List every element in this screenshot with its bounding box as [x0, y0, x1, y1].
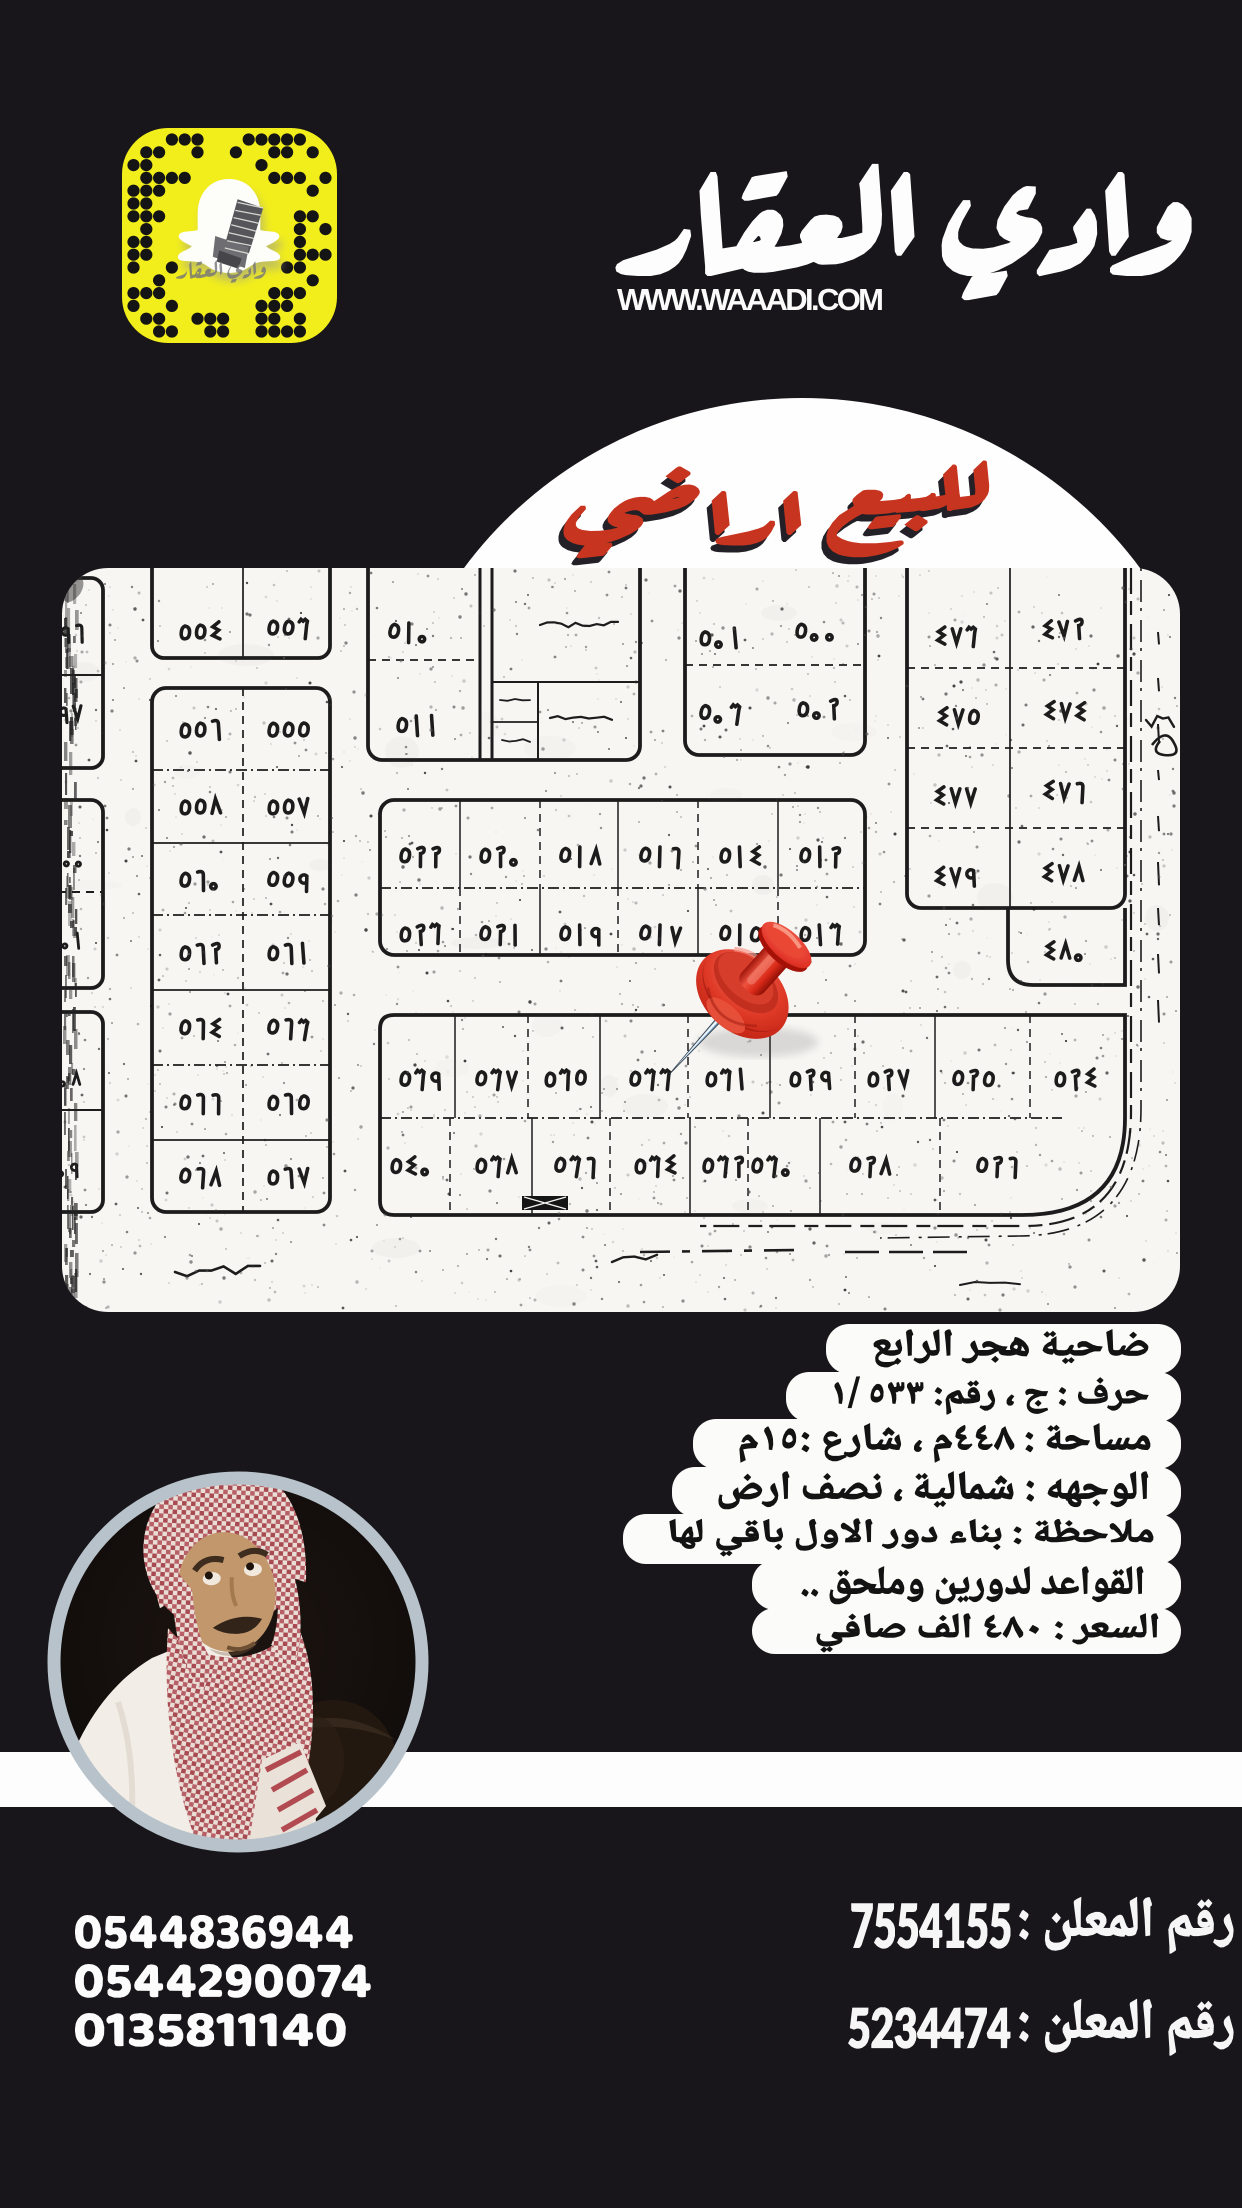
- svg-text:WWW.WAAADI.COM: WWW.WAAADI.COM: [617, 282, 885, 317]
